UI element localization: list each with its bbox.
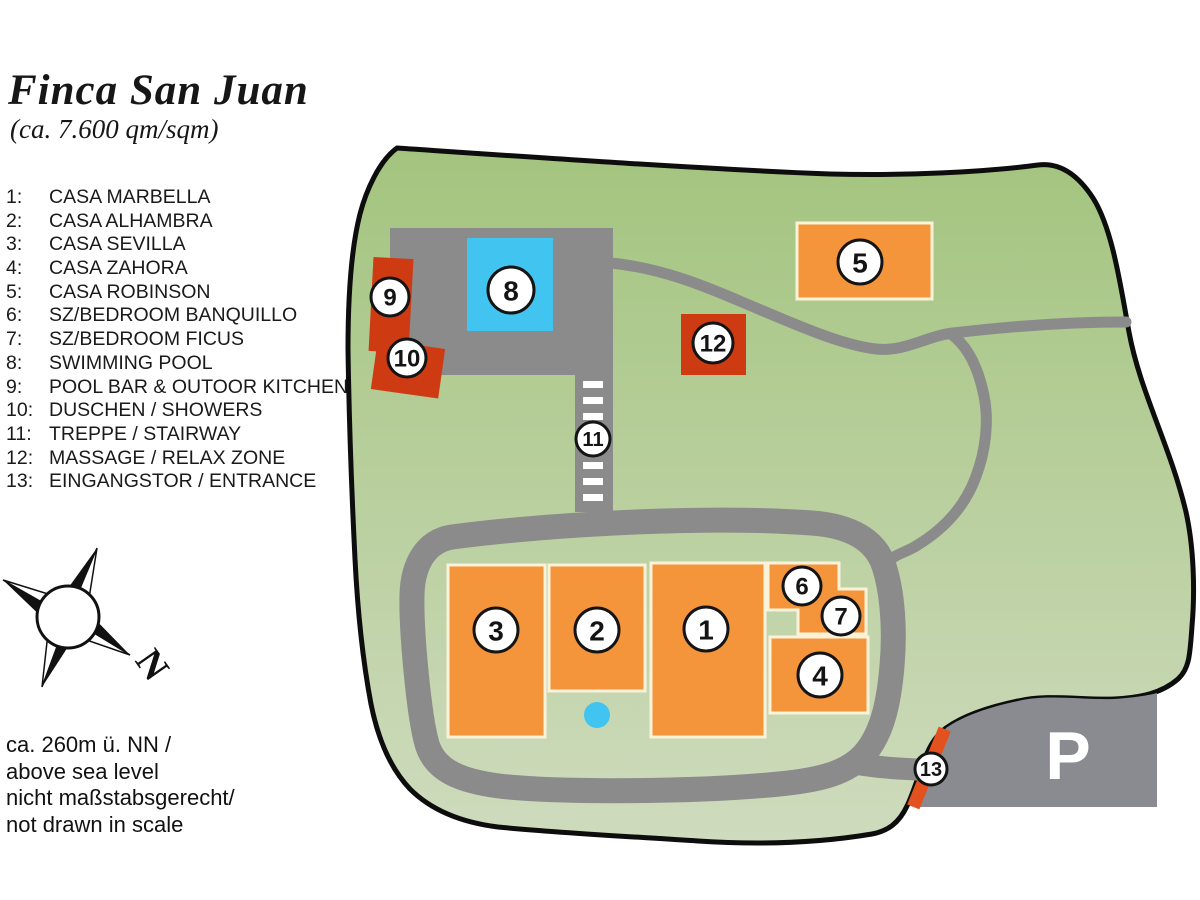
- marker-10: 10: [388, 339, 426, 377]
- marker-2: 2: [575, 608, 619, 652]
- marker-6: 6: [783, 567, 821, 605]
- small-pool-dot: [584, 702, 610, 728]
- svg-text:6: 6: [795, 574, 808, 601]
- svg-text:9: 9: [383, 285, 396, 312]
- svg-text:2: 2: [589, 616, 605, 647]
- site-plan-map: P 1 2 3 4 5 6 7 8 9 10 11 12 13: [0, 0, 1200, 900]
- svg-text:5: 5: [852, 248, 868, 279]
- svg-text:11: 11: [582, 429, 603, 451]
- svg-text:1: 1: [698, 615, 714, 646]
- marker-11: 11: [576, 422, 610, 456]
- svg-text:10: 10: [394, 346, 421, 373]
- marker-7: 7: [822, 597, 860, 635]
- marker-8: 8: [488, 267, 534, 313]
- svg-text:7: 7: [834, 604, 847, 631]
- svg-text:3: 3: [488, 616, 504, 647]
- marker-4: 4: [798, 653, 842, 697]
- marker-1: 1: [684, 607, 728, 651]
- svg-text:4: 4: [812, 661, 828, 692]
- marker-13: 13: [915, 753, 947, 785]
- svg-text:12: 12: [700, 331, 727, 358]
- marker-3: 3: [474, 608, 518, 652]
- svg-text:8: 8: [503, 276, 519, 307]
- marker-12: 12: [693, 323, 733, 363]
- marker-5: 5: [838, 240, 882, 284]
- parking-label: P: [1045, 718, 1090, 794]
- svg-text:13: 13: [920, 759, 942, 781]
- marker-9: 9: [371, 278, 409, 316]
